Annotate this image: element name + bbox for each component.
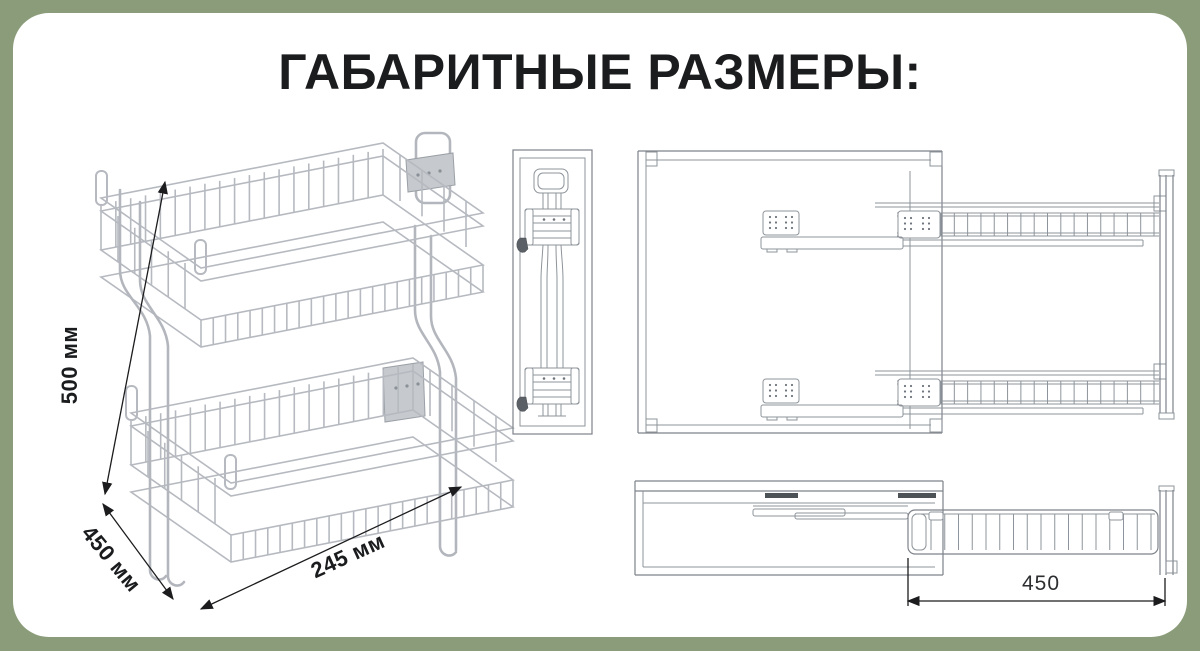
extension-dimension-label: 450 bbox=[991, 572, 1091, 596]
upper-basket-top bbox=[761, 196, 1166, 252]
page-title: ГАБАРИТНЫЕ РАЗМЕРЫ: bbox=[13, 43, 1187, 101]
mount-plate-middle bbox=[383, 362, 425, 422]
lower-basket-top bbox=[761, 364, 1166, 420]
frame-right-post bbox=[383, 133, 456, 556]
door-panel-side bbox=[1159, 486, 1177, 575]
rail-mount-bar bbox=[765, 493, 798, 498]
page: { "title": "ГАБАРИТНЫЕ РАЗМЕРЫ:", "dimen… bbox=[0, 0, 1200, 651]
door-panel-top bbox=[1159, 170, 1174, 419]
width-dimension-arrow bbox=[201, 487, 461, 609]
top-view bbox=[635, 147, 1195, 439]
infographic-card: ГАБАРИТНЫЕ РАЗМЕРЫ: bbox=[13, 13, 1187, 637]
telescopic-rail bbox=[753, 506, 908, 519]
side-view bbox=[635, 473, 1195, 618]
height-dimension-label: 500 мм bbox=[57, 310, 83, 420]
basket-side bbox=[908, 510, 1158, 554]
rail-mount-bar bbox=[898, 493, 936, 498]
isometric-view bbox=[63, 118, 493, 618]
front-view bbox=[510, 144, 598, 440]
